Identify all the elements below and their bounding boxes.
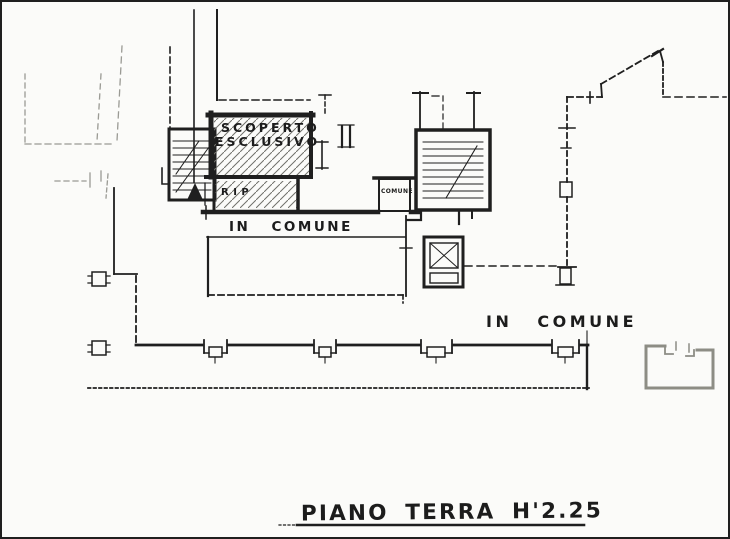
label-scoperto-line1: SCOPERTO [221, 120, 320, 135]
label-corridor-in-comune: IN COMUNE [229, 219, 353, 235]
label-scoperto-line2: ESCLUSIVO [215, 134, 320, 149]
label-area-in-comune: IN COMUNE [486, 312, 637, 331]
stair-tower-left [162, 129, 215, 200]
window-symbol-left-upper [88, 272, 110, 286]
window-symbol [560, 182, 572, 197]
entrance-arrow-icon [187, 183, 203, 200]
neighbor-outline-faint [25, 46, 122, 198]
left-boundary-wall [114, 188, 137, 343]
page-border [1, 1, 729, 538]
facade-window-4 [552, 340, 579, 363]
label-rip: RIP [221, 187, 253, 198]
facade-window-2 [314, 340, 336, 363]
window-symbol [560, 268, 571, 284]
floor-plan-canvas: SCOPERTO ESCLUSIVO RIP COMUNE IN COMUNE … [0, 0, 730, 539]
street-facade-wall [88, 331, 589, 389]
facade-window-1 [204, 340, 227, 363]
label-comune-box: COMUNE [381, 188, 413, 195]
elevator-x-icon [430, 243, 458, 268]
right-boundary [556, 49, 726, 285]
detached-building [646, 342, 713, 388]
window-symbol-left-lower [88, 341, 110, 355]
window-symbol-II [338, 125, 354, 147]
floor-plan-drawing: SCOPERTO ESCLUSIVO RIP COMUNE IN COMUNE … [0, 0, 730, 539]
page-title: PIANO TERRA H'2.25 [301, 498, 603, 526]
facade-window-3 [421, 340, 452, 363]
stair-tower-right [413, 92, 490, 210]
elevator-shaft [407, 210, 558, 287]
